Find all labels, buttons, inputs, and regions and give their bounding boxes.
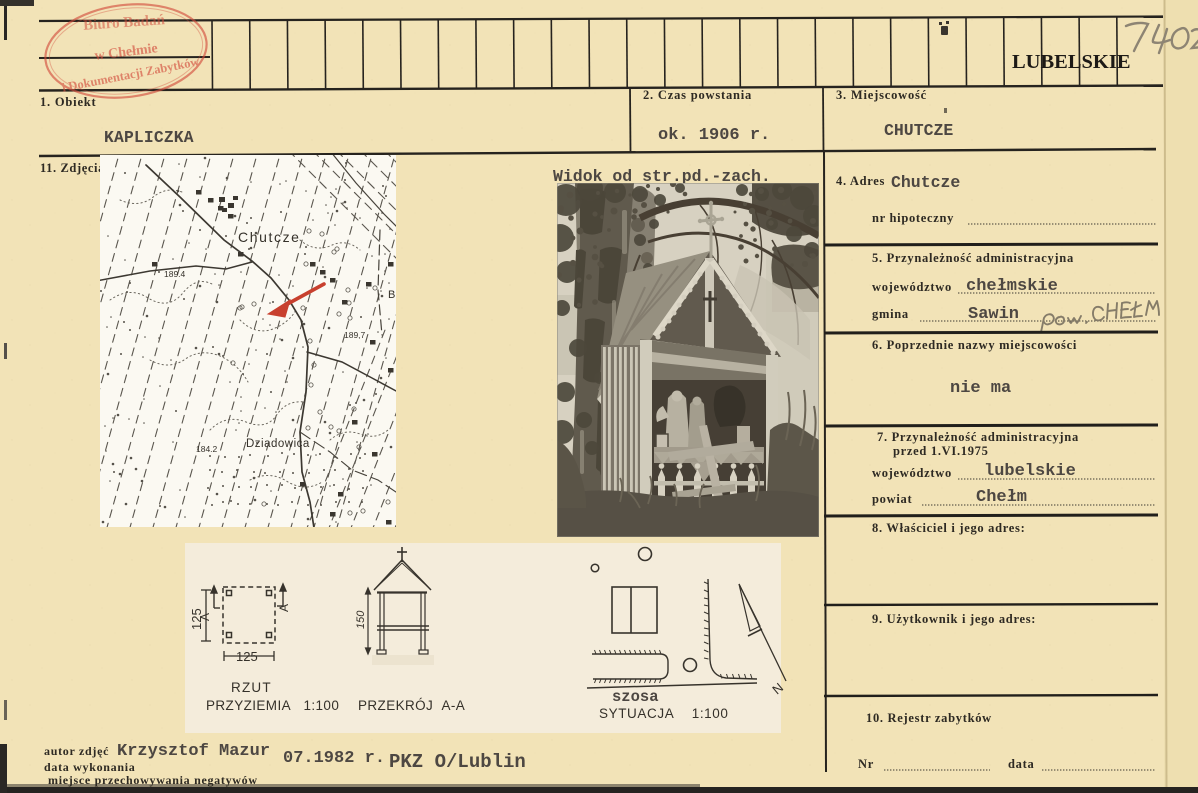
svg-text:Nr: Nr — [858, 757, 874, 771]
svg-text:5. Przynależność administracyj: 5. Przynależność administracyjna — [872, 251, 1074, 265]
svg-text:województwo: województwo — [872, 280, 952, 294]
svg-text:150: 150 — [355, 610, 367, 629]
svg-text:2. Czas powstania: 2. Czas powstania — [643, 88, 752, 102]
svg-text:8. Właściciel i jego adres:: 8. Właściciel i jego adres: — [872, 521, 1025, 535]
svg-text:PRZEKRÓJ A-A: PRZEKRÓJ A-A — [358, 698, 465, 713]
svg-text:1. Obiekt: 1. Obiekt — [40, 95, 97, 109]
svg-text:Dziadowica: Dziadowica — [246, 438, 310, 450]
svg-text:CHUTCZE: CHUTCZE — [884, 121, 953, 140]
svg-text:lubelskie: lubelskie — [984, 462, 1076, 481]
svg-text:4. Adres: 4. Adres — [836, 174, 885, 188]
svg-text:RZUT: RZUT — [231, 680, 272, 695]
svg-text:Chutcze: Chutcze — [891, 173, 960, 192]
svg-text:KAPLICZKA: KAPLICZKA — [104, 128, 194, 147]
svg-text:A: A — [277, 604, 291, 612]
svg-text:autor zdjęć: autor zdjęć — [44, 744, 109, 758]
svg-text:nie ma: nie ma — [950, 379, 1011, 398]
svg-text:Chełm: Chełm — [976, 488, 1027, 507]
svg-text:Chutcze: Chutcze — [238, 229, 301, 245]
svg-text:184.2: 184.2 — [196, 444, 218, 454]
svg-text:189.4: 189.4 — [164, 269, 186, 279]
svg-text:SYTUACJA 1:100: SYTUACJA 1:100 — [599, 706, 729, 721]
svg-text:189,7: 189,7 — [344, 330, 366, 340]
svg-text:data wykonania: data wykonania — [44, 760, 136, 774]
svg-text:125: 125 — [236, 649, 258, 664]
svg-text:3. Miejscowość: 3. Miejscowość — [836, 88, 927, 102]
svg-text:10. Rejestr zabytków: 10. Rejestr zabytków — [866, 711, 992, 725]
svg-text:Krzysztof Mazur: Krzysztof Mazur — [117, 742, 270, 761]
svg-text:nr hipoteczny: nr hipoteczny — [872, 211, 954, 225]
svg-text:B: B — [388, 289, 395, 301]
svg-text:szosa: szosa — [612, 688, 659, 706]
svg-text:LUBELSKIE: LUBELSKIE — [1012, 51, 1131, 73]
svg-text:Sawin: Sawin — [968, 305, 1019, 324]
svg-text:ok. 1906 r.: ok. 1906 r. — [658, 126, 770, 145]
svg-text:powiat: powiat — [872, 492, 912, 506]
svg-text:PRZYZIEMIA 1:100: PRZYZIEMIA 1:100 — [206, 698, 339, 713]
svg-text:9. Użytkownik i jego adres:: 9. Użytkownik i jego adres: — [872, 612, 1036, 626]
svg-text:województwo: województwo — [872, 466, 952, 480]
svg-text:data: data — [1008, 757, 1034, 771]
svg-text:chełmskie: chełmskie — [966, 277, 1058, 296]
svg-text:przed 1.VI.1975: przed 1.VI.1975 — [893, 444, 989, 458]
svg-text:gmina: gmina — [872, 307, 909, 321]
svg-text:11. Zdjęcia,: 11. Zdjęcia, — [40, 161, 109, 175]
svg-text:miejsce przechowywania negatyw: miejsce przechowywania negatywów — [48, 773, 258, 787]
svg-text:7. Przynależność administracyj: 7. Przynależność administracyjna — [877, 430, 1079, 444]
svg-text:A: A — [198, 613, 212, 621]
svg-text:PKZ O/Lublin: PKZ O/Lublin — [389, 751, 526, 773]
svg-text:6. Poprzednie nazwy miejscowoś: 6. Poprzednie nazwy miejscowości — [872, 338, 1077, 352]
svg-text:07.1982 r.: 07.1982 r. — [283, 749, 385, 768]
